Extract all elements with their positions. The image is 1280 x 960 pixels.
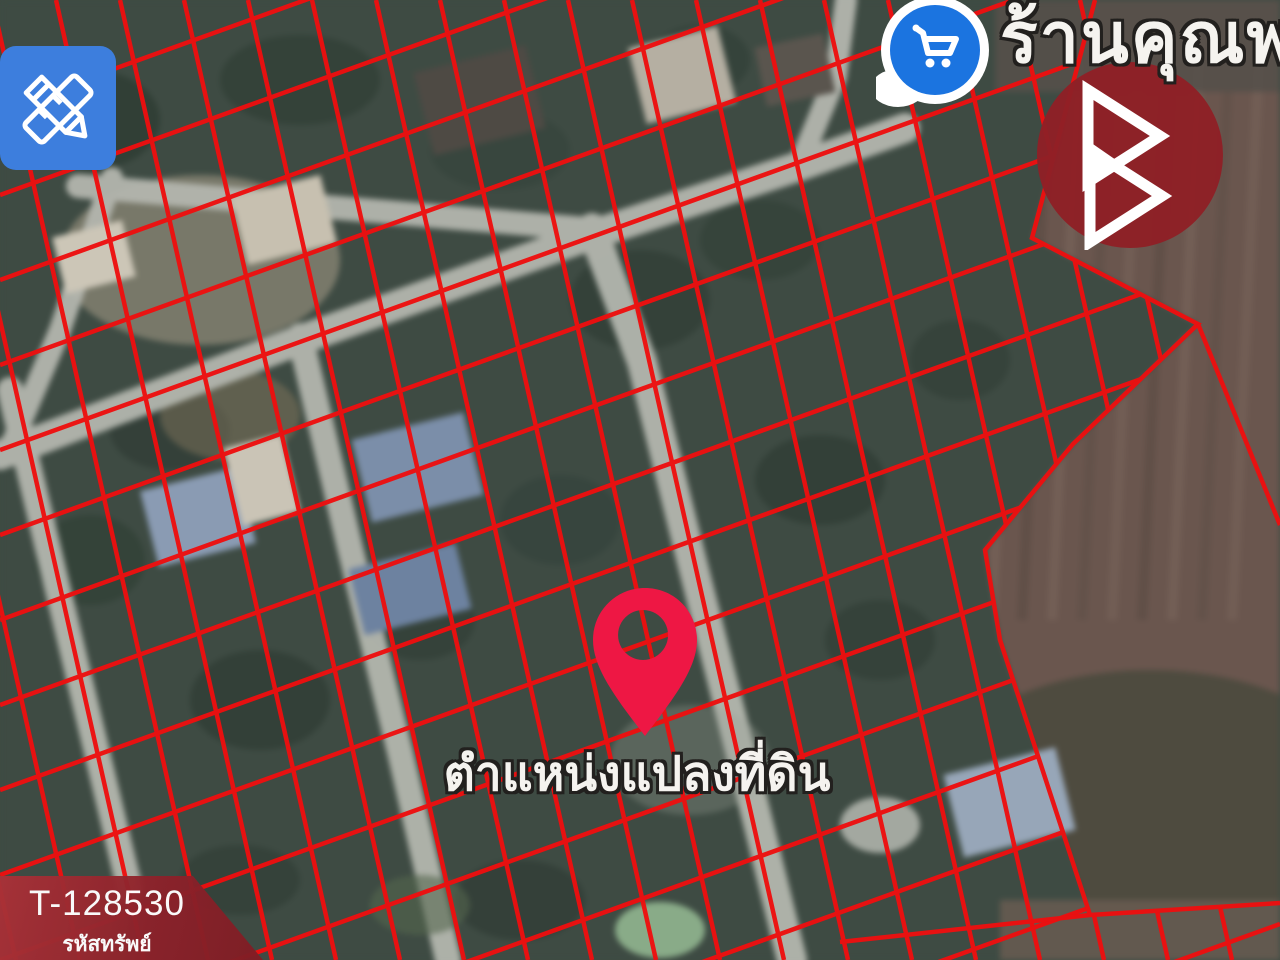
- location-pin-icon: [585, 582, 705, 742]
- edit-plan-button[interactable]: [0, 46, 116, 170]
- satellite-map-view: ร้านคุณพ ตำแหน่งแปลงที่ดิน T-128530 รหัส…: [0, 0, 1280, 960]
- pin-caption-label: ตำแหน่งแปลงที่ดิน: [444, 750, 831, 800]
- shop-name-label: ร้านคุณพ: [1000, 2, 1280, 76]
- shop-poi-marker[interactable]: [876, 0, 996, 112]
- property-code-caption: รหัสทรัพย์: [22, 928, 192, 960]
- property-code: T-128530: [22, 884, 192, 924]
- brand-watermark: [1036, 60, 1226, 250]
- edit-button-bg: [0, 46, 116, 170]
